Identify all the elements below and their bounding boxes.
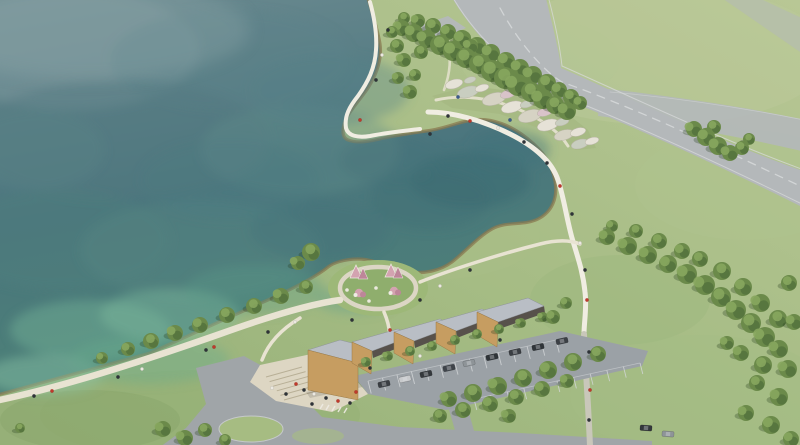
tree-crown-light (763, 417, 773, 427)
tree-crown-light (751, 376, 760, 385)
tree-crown-light (403, 86, 411, 94)
tree-crown-light (547, 311, 555, 319)
person-dot (545, 161, 548, 164)
tree-crown-light (592, 347, 601, 356)
tree-crown-light (435, 410, 443, 418)
person-dot (588, 388, 591, 391)
person-dot (587, 418, 590, 421)
tree-crown-light (743, 315, 754, 326)
person-dot (348, 401, 351, 404)
person-dot (583, 268, 586, 271)
person-dot (32, 394, 35, 397)
person-dot (266, 330, 269, 333)
tree-crown-light (167, 326, 176, 335)
person-dot (386, 28, 389, 31)
tree-crown-light (392, 40, 400, 48)
tree-crown-light (677, 266, 688, 277)
tree-crown-dark (387, 355, 393, 361)
person-dot (50, 389, 53, 392)
tree-crown-light (713, 289, 724, 300)
tree-crown-dark (183, 436, 192, 445)
tree-crown-light (176, 431, 185, 440)
tree-crown-light (392, 73, 399, 80)
tree-crown-light (599, 230, 608, 239)
tree-crown-light (698, 129, 708, 139)
car-glass (644, 426, 649, 430)
person-dot (294, 382, 297, 385)
tree-crown-dark (785, 366, 795, 376)
person-dot (374, 78, 377, 81)
tree-crown-light (632, 225, 640, 233)
person-dot (587, 350, 590, 353)
aerial-scene (0, 0, 800, 445)
tree-crown-light (735, 279, 745, 289)
tree-crown-light (454, 31, 464, 41)
water-patch (140, 140, 320, 220)
tree-crown-light (473, 56, 484, 67)
lakeside-park-rendering (0, 0, 800, 445)
tree-crown-dark (296, 261, 304, 269)
person-dot (570, 212, 573, 215)
person-dot (578, 241, 581, 244)
person-dot (293, 320, 296, 323)
tree-crown-light (770, 389, 780, 399)
person-dot (388, 328, 391, 331)
tree-crown-dark (495, 383, 505, 393)
tree-crown-light (721, 146, 730, 155)
tree-crown-light (155, 422, 164, 431)
person-dot (468, 268, 471, 271)
tree-crown-light (510, 390, 519, 399)
person-dot (428, 132, 431, 135)
tree-crown-dark (402, 58, 410, 66)
person-dot (522, 140, 525, 143)
person-dot (418, 354, 421, 357)
tree-crown-light (693, 277, 704, 288)
person-dot (116, 375, 119, 378)
tree-crown-light (122, 343, 130, 351)
tree-crown-light (416, 31, 426, 41)
tree-crown-light (451, 336, 457, 342)
tree-crown-light (607, 221, 614, 228)
tree-crown-light (537, 313, 543, 319)
car-glass (666, 432, 671, 436)
person-dot (212, 345, 215, 348)
tree-crown-dark (507, 414, 515, 422)
person-dot (336, 399, 339, 402)
tree-crown-light (484, 62, 496, 74)
tree-crown-light (221, 308, 230, 317)
play-dot (374, 286, 378, 290)
person-dot (446, 114, 449, 117)
tree-crown-light (400, 13, 407, 20)
tree-crown-light (777, 361, 787, 371)
tree-crown-light (483, 397, 492, 406)
tree-crown-light (745, 134, 752, 141)
tree-crown-light (305, 244, 315, 254)
person-dot (140, 367, 143, 370)
tree-crown-light (768, 341, 778, 351)
car (640, 425, 652, 431)
tree-crown-light (146, 334, 155, 343)
tree-crown-light (565, 90, 574, 99)
tree-crown-light (574, 97, 582, 105)
tree-crown-light (361, 358, 367, 364)
tree-crown-light (249, 299, 258, 308)
tree-crown-light (567, 354, 577, 364)
tree-crown-light (540, 362, 550, 372)
tree-crown-light (482, 45, 492, 55)
tree-crown-light (273, 289, 282, 298)
tree-crown-light (709, 121, 717, 129)
tree-crown-light (441, 25, 450, 34)
tree-crown-light (784, 432, 793, 441)
person-dot (508, 118, 511, 121)
person-dot (558, 184, 561, 187)
tree-crown-light (660, 256, 670, 266)
tree-crown-light (726, 302, 737, 313)
tree-crown-light (552, 83, 561, 92)
tree-crown-light (511, 60, 521, 70)
tree-crown-dark (520, 322, 526, 328)
tree-crown-light (427, 19, 436, 28)
mound-white (389, 291, 393, 295)
tree-crown-light (473, 330, 479, 336)
tree-crown-light (786, 315, 795, 324)
knoll-ring-path (340, 267, 416, 309)
tree-crown-light (290, 257, 298, 265)
person-dot (350, 318, 353, 321)
median-island (292, 428, 344, 444)
tree-crown-light (405, 25, 415, 35)
tree-crown-light (531, 91, 542, 102)
tree-crown-light (737, 142, 745, 150)
person-dot (585, 298, 588, 301)
person-dot (496, 126, 499, 129)
tree-crown-light (716, 263, 726, 273)
tree-crown-light (653, 234, 662, 243)
tree-crown-light (694, 252, 703, 261)
mound-small (395, 290, 401, 296)
tree-crown-light (97, 353, 104, 360)
tree-crown-light (720, 337, 728, 345)
person-dot (468, 119, 471, 122)
person-dot (284, 392, 287, 395)
car (662, 431, 674, 437)
play-dot (367, 299, 371, 303)
water-patch (340, 135, 440, 185)
tree-crown-light (783, 276, 792, 285)
tree-crown-light (221, 435, 228, 442)
tree-crown-light (407, 347, 413, 353)
tree-crown-light (685, 122, 694, 131)
person-dot (324, 396, 327, 399)
person-dot (498, 338, 501, 341)
person-dot (302, 388, 305, 391)
tree-crown-light (428, 342, 434, 348)
person-dot (358, 118, 361, 121)
tree-crown-light (193, 318, 202, 327)
tree-crown-light (410, 70, 417, 77)
tree-crown-light (411, 15, 419, 23)
tree-crown-dark (447, 397, 456, 406)
tree-crown-dark (702, 282, 714, 294)
tree-crown-light (753, 329, 764, 340)
tree-crown-light (772, 311, 782, 321)
tree-crown-light (440, 392, 449, 401)
tree-crown-light (756, 357, 766, 367)
tree-crown-dark (625, 243, 635, 253)
tree-crown-light (382, 352, 388, 358)
tree-crown-light (417, 46, 425, 54)
tree-crown-light (458, 50, 469, 61)
person-dot (354, 390, 357, 393)
tree-crown-light (17, 424, 23, 430)
tree-crown-light (463, 40, 471, 48)
tree-crown-light (501, 410, 509, 418)
tree-crown-dark (728, 151, 737, 160)
person-dot (380, 53, 383, 56)
tree-crown-light (540, 75, 550, 85)
tree-crown-light (558, 103, 568, 113)
person-dot (310, 402, 313, 405)
mound-white (354, 293, 358, 297)
tree-crown-light (675, 244, 684, 253)
person-dot (438, 284, 441, 287)
tree-crown-light (505, 76, 517, 88)
tree-crown-light (549, 97, 559, 107)
person-dot (312, 392, 315, 395)
tree-crown-light (302, 281, 310, 289)
play-dot (345, 288, 349, 292)
tree-crown-light (535, 382, 544, 391)
tree-crown-light (517, 370, 527, 380)
person-dot (270, 386, 273, 389)
tree-crown-light (733, 346, 742, 355)
mound-small (360, 292, 366, 298)
tree-crown-light (487, 378, 497, 388)
tree-crown-light (200, 424, 208, 432)
tree-crown-light (444, 43, 455, 54)
tree-crown-light (396, 54, 404, 62)
tree-crown-light (639, 247, 649, 257)
tree-crown-light (498, 53, 508, 63)
tree-crown-light (467, 385, 477, 395)
water-patch (250, 55, 410, 125)
tree-crown-light (496, 325, 502, 331)
person-dot (418, 298, 421, 301)
person-dot (368, 366, 371, 369)
tree-crown-light (515, 319, 521, 325)
tree-crown-light (738, 406, 747, 415)
tree-crown-dark (758, 300, 768, 310)
tree-crown-light (434, 37, 445, 48)
tree-crown-light (458, 403, 467, 412)
tree-crown-light (617, 238, 627, 248)
tree-crown-dark (776, 346, 786, 356)
tree-crown-light (750, 295, 760, 305)
person-dot (456, 95, 459, 98)
tree-crown-light (709, 138, 719, 148)
tree-crown-light (560, 375, 568, 383)
tree-crown-light (561, 298, 568, 305)
person-dot (204, 348, 207, 351)
